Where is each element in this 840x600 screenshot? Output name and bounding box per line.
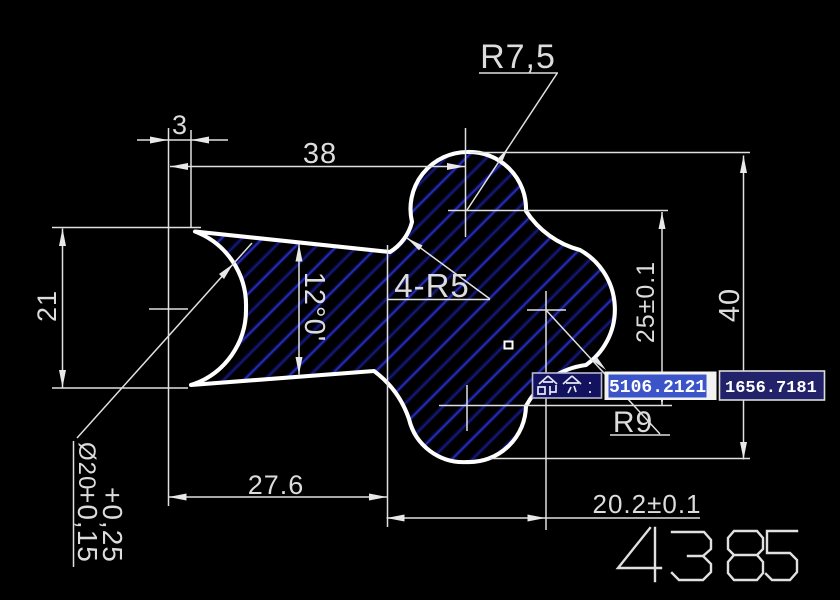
- svg-text:40: 40: [714, 288, 746, 322]
- svg-text:12°0': 12°0': [298, 272, 330, 343]
- svg-text:21: 21: [32, 290, 62, 322]
- svg-text:38: 38: [303, 138, 337, 170]
- svg-text:Ø20: Ø20: [73, 442, 100, 490]
- svg-text:R9: R9: [613, 406, 653, 439]
- svg-text:20.2±0.1: 20.2±0.1: [592, 489, 701, 519]
- svg-text:+0,15: +0,15: [72, 487, 103, 563]
- svg-text:1656.7181: 1656.7181: [725, 379, 817, 398]
- svg-text:4-R5: 4-R5: [394, 267, 470, 304]
- svg-text:5106.2121: 5106.2121: [609, 378, 706, 398]
- svg-text:3: 3: [172, 110, 188, 140]
- svg-text:R7,5: R7,5: [480, 38, 556, 76]
- svg-text:25±0.1: 25±0.1: [632, 261, 660, 343]
- svg-text:27.6: 27.6: [248, 470, 305, 500]
